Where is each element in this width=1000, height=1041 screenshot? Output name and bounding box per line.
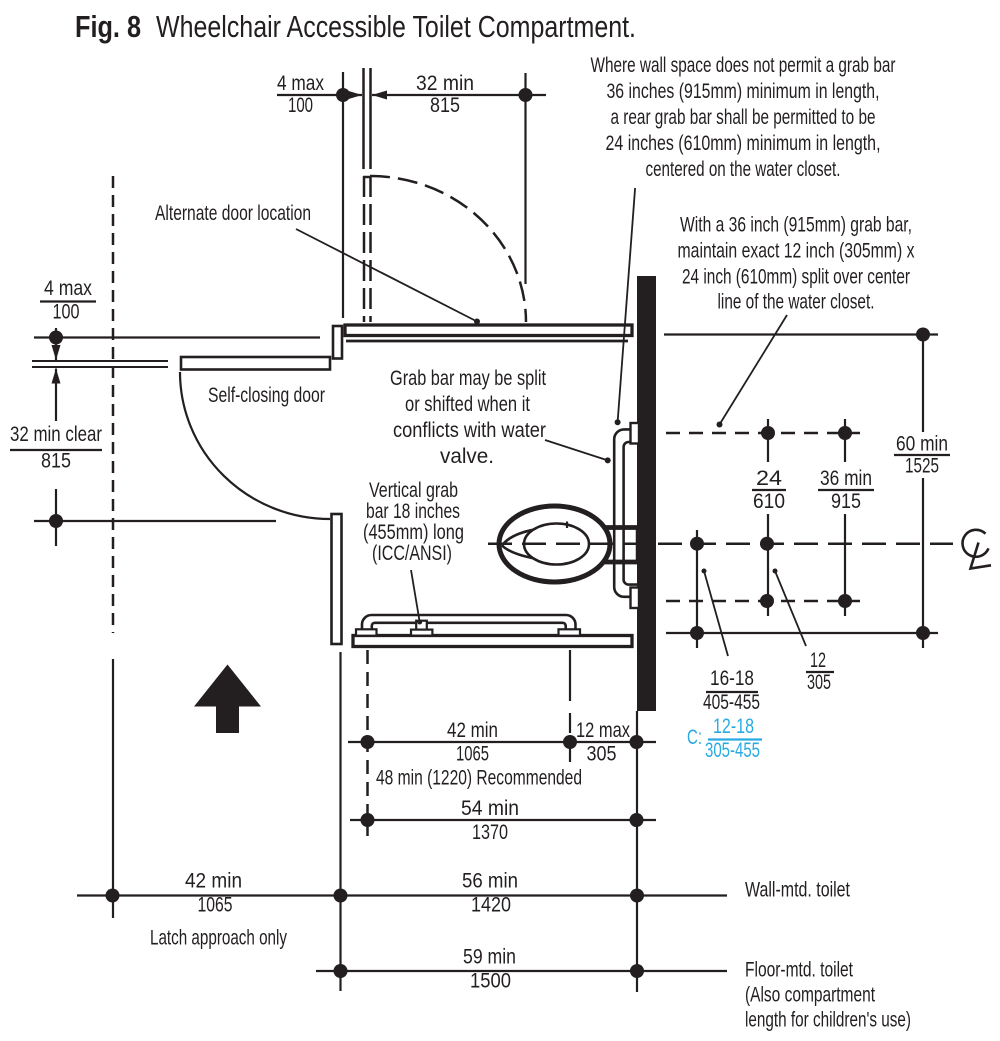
svg-text:centered on the water closet.: centered on the water closet. — [646, 158, 841, 181]
svg-text:Wheelchair Accessible Toilet C: Wheelchair Accessible Toilet Compartment… — [156, 9, 636, 44]
svg-text:24 inches (610mm) minimum in l: 24 inches (610mm) minimum in length, — [606, 132, 881, 155]
svg-text:1500: 1500 — [470, 970, 511, 993]
svg-text:305: 305 — [807, 671, 831, 694]
svg-text:54 min: 54 min — [461, 797, 519, 820]
svg-text:(ICC/ANSI): (ICC/ANSI) — [372, 542, 452, 565]
svg-text:36 min: 36 min — [820, 467, 872, 490]
svg-text:or shifted when it: or shifted when it — [405, 393, 530, 416]
svg-text:Vertical grab: Vertical grab — [369, 479, 458, 502]
svg-text:length for children's use): length for children's use) — [745, 1009, 911, 1032]
svg-text:Alternate door location: Alternate door location — [155, 202, 311, 225]
svg-text:815: 815 — [41, 450, 71, 473]
svg-text:4 max: 4 max — [44, 277, 92, 300]
svg-text:610: 610 — [753, 490, 785, 513]
svg-text:Self-closing door: Self-closing door — [208, 384, 325, 407]
svg-text:4 max: 4 max — [277, 72, 324, 95]
svg-text:Latch approach only: Latch approach only — [150, 927, 287, 950]
svg-text:36 inches (915mm) minimum in l: 36 inches (915mm) minimum in length, — [607, 80, 880, 103]
svg-text:Fig. 8: Fig. 8 — [75, 9, 141, 44]
svg-text:405-455: 405-455 — [703, 691, 760, 714]
svg-text:1065: 1065 — [456, 743, 489, 766]
svg-text:16-18: 16-18 — [710, 667, 754, 690]
svg-text:59 min: 59 min — [463, 946, 516, 969]
svg-text:42 min: 42 min — [185, 870, 242, 893]
svg-text:32 min: 32 min — [416, 72, 474, 95]
svg-text:815: 815 — [430, 94, 460, 117]
svg-text:24: 24 — [756, 467, 782, 490]
svg-text:Grab bar may be split: Grab bar may be split — [390, 367, 546, 390]
svg-text:conflicts with water: conflicts with water — [393, 419, 546, 442]
svg-text:56 min: 56 min — [462, 870, 518, 893]
svg-text:bar 18 inches: bar 18 inches — [366, 500, 460, 523]
svg-text:1065: 1065 — [198, 894, 233, 917]
svg-text:(455mm) long: (455mm) long — [363, 521, 464, 544]
svg-text:12 max: 12 max — [576, 719, 630, 742]
svg-text:24 inch (610mm) split over cen: 24 inch (610mm) split over center — [682, 266, 910, 289]
svg-text:1370: 1370 — [472, 821, 508, 844]
svg-text:915: 915 — [831, 490, 861, 513]
svg-text:maintain exact 12 inch (305mm): maintain exact 12 inch (305mm) x — [678, 240, 915, 263]
svg-text:32 min clear: 32 min clear — [10, 423, 102, 446]
svg-text:60 min: 60 min — [896, 433, 948, 456]
svg-text:12: 12 — [810, 649, 826, 672]
svg-text:305: 305 — [587, 743, 617, 766]
svg-text:42 min: 42 min — [447, 719, 498, 742]
svg-text:line of the water closet.: line of the water closet. — [718, 291, 875, 314]
svg-text:48 min (1220) Recommended: 48 min (1220) Recommended — [376, 767, 582, 790]
svg-text:C:: C: — [687, 726, 702, 749]
svg-text:12-18: 12-18 — [713, 715, 754, 738]
svg-text:Where wall space does not perm: Where wall space does not permit a grab … — [591, 54, 896, 77]
svg-text:With a 36 inch (915mm) grab ba: With a 36 inch (915mm) grab bar, — [680, 214, 912, 237]
svg-text:100: 100 — [288, 94, 313, 117]
svg-text:valve.: valve. — [440, 445, 494, 468]
svg-text:a rear grab bar shall be permi: a rear grab bar shall be permitted to be — [611, 106, 876, 129]
svg-text:Wall-mtd. toilet: Wall-mtd. toilet — [745, 879, 850, 902]
svg-text:Floor-mtd. toilet: Floor-mtd. toilet — [745, 959, 853, 982]
svg-text:1420: 1420 — [471, 894, 511, 917]
svg-text:305-455: 305-455 — [705, 739, 760, 762]
svg-text:(Also compartment: (Also compartment — [745, 984, 875, 1007]
svg-text:1525: 1525 — [905, 455, 939, 478]
svg-text:100: 100 — [53, 301, 80, 324]
